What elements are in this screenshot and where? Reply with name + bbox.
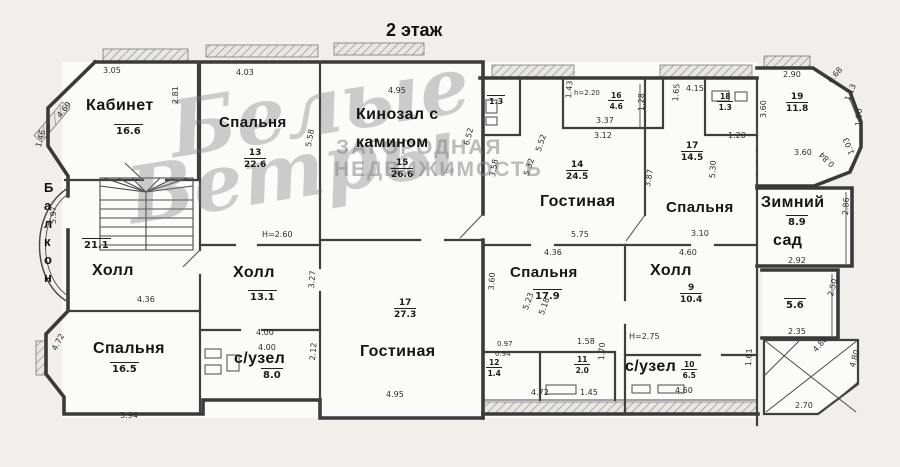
dim: 4.15 — [686, 84, 704, 93]
room-number: 19 — [786, 92, 808, 103]
room-number: 12 — [486, 358, 502, 368]
dim: 4.36 — [544, 248, 562, 257]
dim: 1.65 — [671, 83, 682, 102]
dim: 4.00 — [256, 328, 274, 337]
dim: 3.94 — [120, 411, 138, 420]
room-number: 18 — [717, 92, 733, 102]
dim: 4.00 — [258, 343, 276, 352]
room-frac-bedroom-top: 13 22.6 — [244, 148, 266, 170]
dim: 2.35 — [788, 327, 806, 336]
dim: 1.43 — [564, 80, 575, 99]
room-area: 27.3 — [394, 309, 416, 320]
dim: 4.36 — [137, 295, 155, 304]
room-frac-bedroom-right: 17 14.5 — [681, 141, 703, 163]
room-label-cinema-line1: Кинозал с — [356, 106, 439, 124]
area-value: 8.0 — [261, 368, 283, 381]
room-frac-living-bottom: 17 27.3 — [394, 298, 416, 320]
dim: 4.60 — [679, 248, 697, 257]
area-value: 5.6 — [784, 298, 806, 311]
dim: 3.37 — [596, 116, 614, 125]
balcony-label-letter: о — [44, 252, 52, 267]
balcony-label-letter: к — [44, 234, 51, 249]
room-area: 22.6 — [244, 159, 266, 170]
area-value: 8.9 — [786, 215, 808, 228]
dim: 5.30 — [708, 160, 718, 178]
dim: 1.61 — [744, 348, 754, 366]
dim: 1.70 — [597, 342, 607, 360]
room-area-kabinet: 16.6 — [114, 124, 143, 137]
dim: 2.92 — [788, 256, 806, 265]
room-frac-living-right: 14 24.5 — [566, 160, 588, 182]
dim: 1.28 — [637, 93, 646, 111]
room-frac-cinema: 15 26.6 — [391, 158, 413, 180]
dim: 5.75 — [571, 230, 589, 239]
room-number: 10 — [681, 360, 697, 370]
room-number: 9 — [680, 283, 702, 294]
room-number: 11 — [574, 355, 590, 365]
room-area-winter: 8.9 — [786, 215, 808, 228]
dim: 4.95 — [386, 390, 404, 399]
room-area: 1.3 — [717, 102, 733, 112]
room-area-hall-mid: 13.1 — [248, 290, 277, 303]
room-label-living-right: Гостиная — [540, 193, 616, 211]
page-title: 2 этаж — [386, 20, 442, 41]
dim: 0.94 — [495, 350, 511, 358]
room-label-wc-mid: с/узел — [234, 350, 285, 368]
floorplan-scan: Белые Ветры ЗАГОРОДНАЯ НЕДВИЖИМОСТЬ 2 эт… — [0, 0, 900, 467]
room-label-kabinet: Кабинет — [86, 97, 154, 115]
room-area: 24.5 — [566, 171, 588, 182]
room-label-bedroom-right: Спальня — [666, 199, 734, 216]
room-label-winter-line1: Зимний — [761, 194, 824, 212]
room-label-hall-right: Холл — [650, 262, 692, 280]
dim: 2.86 — [841, 197, 851, 215]
room-frac-18: 18 1.3 — [717, 92, 733, 112]
room-label-bedroom-left: Спальня — [93, 340, 165, 358]
dim: 5.97 — [49, 206, 58, 224]
dim: 4.03 — [236, 68, 254, 77]
floorplan-drawing — [0, 0, 900, 467]
room-label-winter-line2: сад — [773, 232, 802, 250]
dim: 2.90 — [783, 70, 801, 79]
dim: 2.70 — [795, 401, 813, 410]
balcony-label-letter: н — [44, 270, 52, 285]
room-area: 26.6 — [391, 169, 413, 180]
room-frac-11: 11 2.0 — [574, 355, 590, 375]
room-number: 17 — [681, 141, 703, 152]
dim: 3.27 — [307, 270, 318, 289]
room-area: 10.4 — [680, 294, 702, 305]
dim: 3.60 — [487, 272, 497, 290]
room-number: 13 — [244, 148, 266, 159]
room-area: 11.8 — [786, 103, 808, 114]
room-label-wc-right: с/узел — [625, 358, 676, 376]
room-frac-wc-right: 10 6.5 — [681, 360, 697, 380]
dim: 1.90 — [854, 108, 864, 126]
room-area-bedroom-left: 16.5 — [110, 362, 139, 375]
room-number: 17 — [394, 298, 416, 309]
room-area: 6.5 — [681, 370, 697, 380]
room-label-bedroom-top: Спальня — [219, 114, 287, 131]
room-area-wc-mid: 8.0 — [261, 368, 283, 381]
dim: 3.12 — [594, 131, 612, 140]
room-area: 2.0 — [574, 365, 590, 375]
room-number: 15 — [391, 158, 413, 169]
room-number: 14 — [566, 160, 588, 171]
dim: H=2.75 — [629, 332, 660, 341]
area-value: 1.3 — [487, 95, 505, 106]
room-label-cinema-line2: камином — [356, 134, 428, 152]
room-frac-hall-right: 9 10.4 — [680, 283, 702, 305]
dim: 3.60 — [794, 148, 812, 157]
room-area: 4.6 — [608, 101, 624, 111]
dim: 2.12 — [308, 342, 319, 361]
dim: 4.72 — [531, 388, 549, 397]
area-value: 16.5 — [110, 362, 139, 375]
room-label-hall-left: Холл — [92, 262, 134, 280]
dim: 0.97 — [497, 340, 513, 348]
dim: 1.20 — [728, 131, 746, 140]
room-frac-16: 16 4.6 — [608, 91, 624, 111]
room-area-tiny-wc: 1.3 — [487, 95, 505, 106]
dim: H=2.60 — [262, 230, 293, 239]
dim: 4.95 — [388, 86, 406, 95]
dim: 4.60 — [675, 386, 693, 395]
room-area: 14.5 — [681, 152, 703, 163]
area-value: 13.1 — [248, 290, 277, 303]
dim: h=2.20 — [574, 89, 600, 97]
room-label-bedroom-bottom: Спальня — [510, 264, 578, 281]
room-label-living-bottom: Гостиная — [360, 343, 436, 361]
area-value: 21.1 — [82, 238, 111, 251]
dim: 3.10 — [691, 229, 709, 238]
room-area: 1.4 — [486, 368, 502, 378]
room-label-hall-mid: Холл — [233, 264, 275, 282]
dim: 1.58 — [577, 337, 595, 346]
area-value: 16.6 — [114, 124, 143, 137]
dim: 3.05 — [103, 66, 121, 75]
dim: 3.60 — [759, 100, 768, 118]
room-number: 16 — [608, 91, 624, 101]
room-frac-12: 12 1.4 — [486, 358, 502, 378]
room-area-56: 5.6 — [784, 298, 806, 311]
room-frac-19: 19 11.8 — [786, 92, 808, 114]
dim: 1.45 — [580, 388, 598, 397]
balcony-label-letter: Б — [44, 180, 53, 195]
dim: 2.81 — [171, 86, 180, 104]
room-area-hall-left: 21.1 — [82, 238, 111, 251]
